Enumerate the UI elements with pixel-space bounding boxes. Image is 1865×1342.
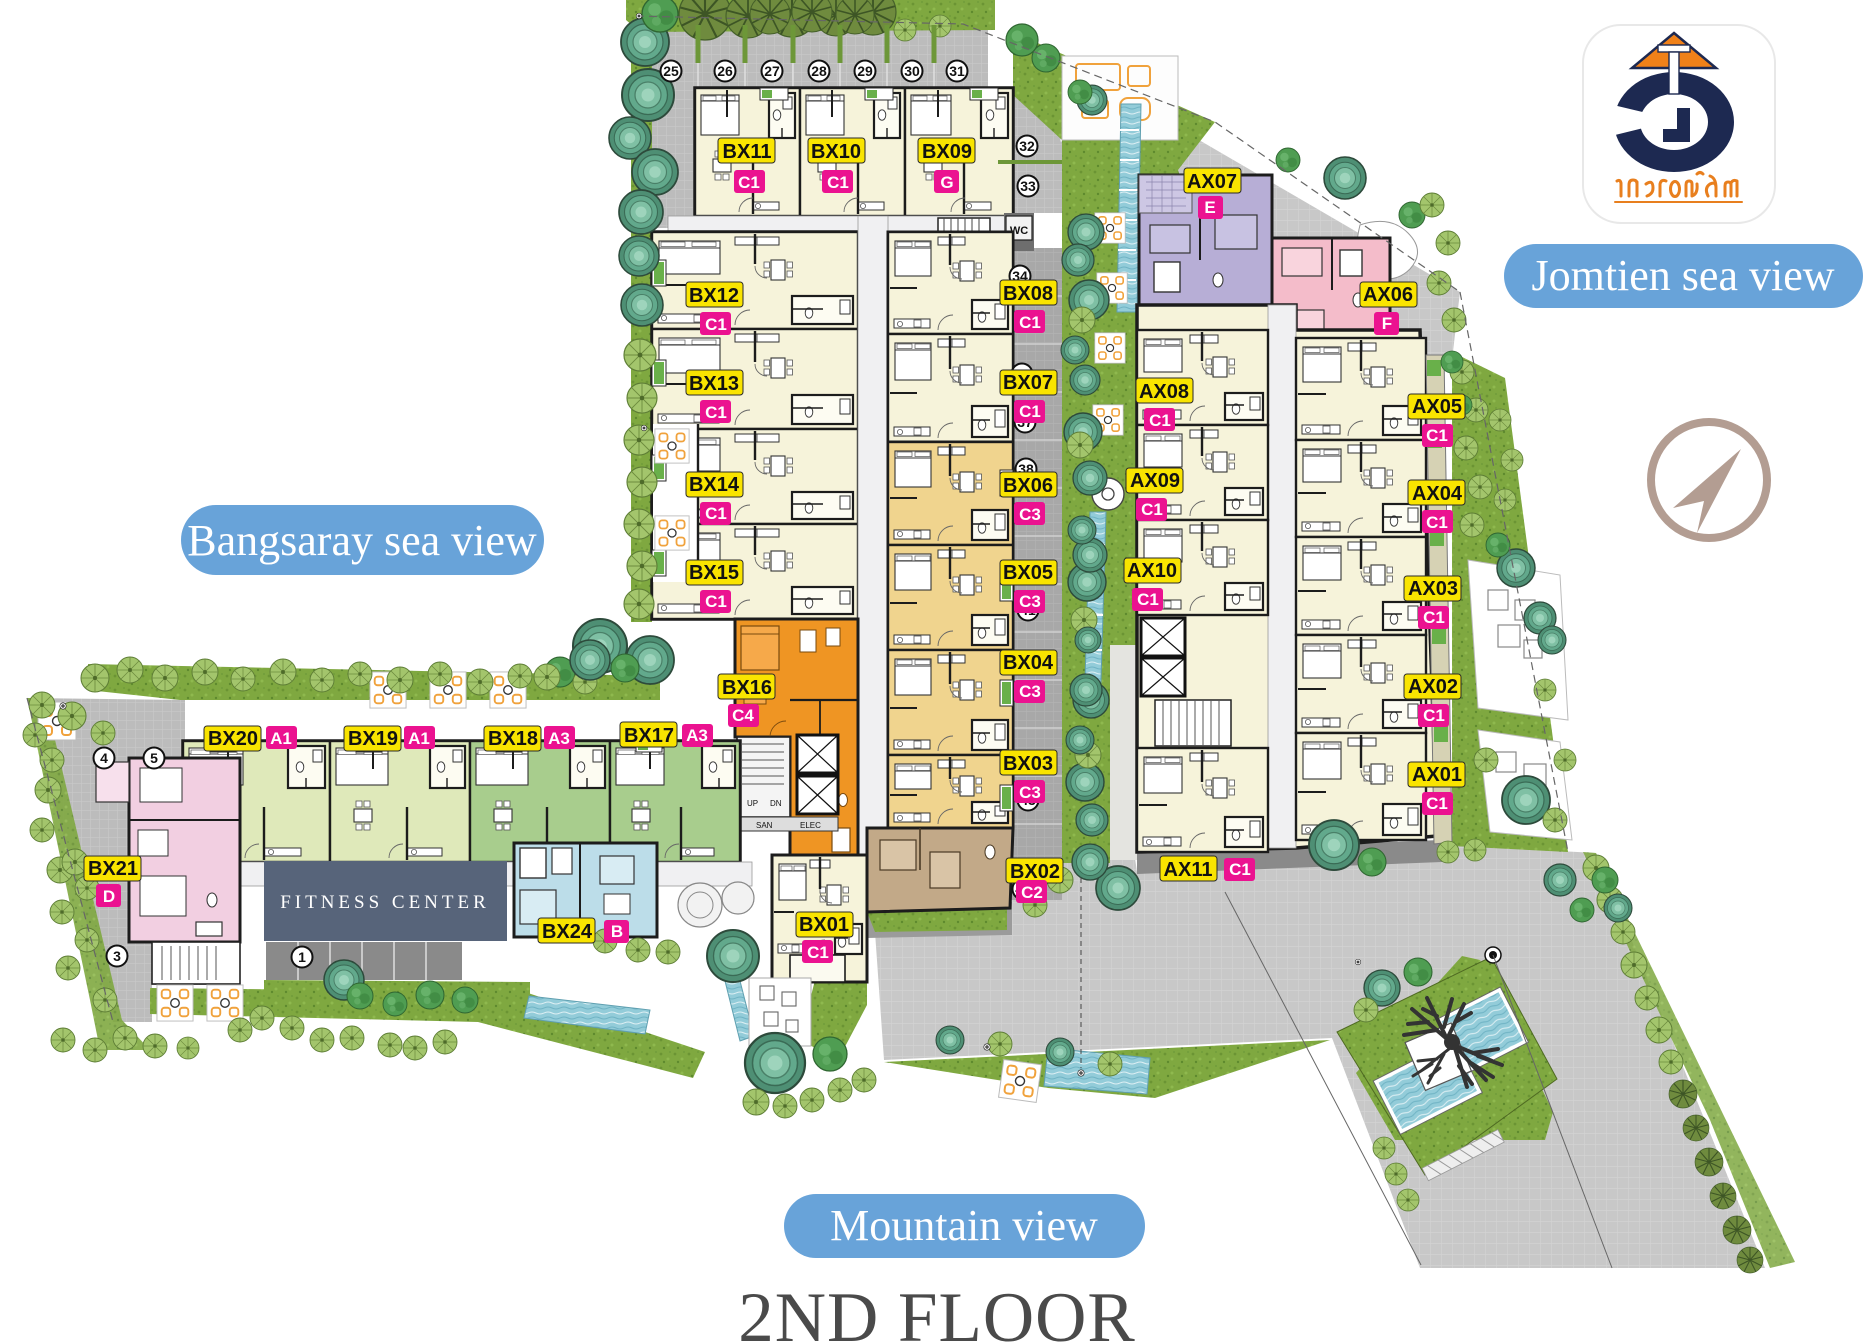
- svg-text:BX18: BX18: [488, 728, 538, 750]
- svg-text:A3: A3: [548, 729, 570, 748]
- svg-text:BX04: BX04: [1003, 652, 1054, 674]
- svg-text:BX19: BX19: [348, 728, 398, 750]
- svg-text:C3: C3: [1019, 505, 1041, 524]
- svg-text:BX20: BX20: [208, 728, 258, 750]
- svg-text:C1: C1: [705, 504, 727, 523]
- svg-text:C1: C1: [1141, 500, 1163, 519]
- svg-text:25: 25: [663, 63, 679, 79]
- svg-text:BX01: BX01: [799, 914, 849, 936]
- svg-text:33: 33: [1020, 178, 1036, 194]
- svg-text:AX02: AX02: [1408, 676, 1458, 698]
- svg-text:E: E: [1204, 198, 1215, 217]
- svg-text:C3: C3: [1019, 682, 1041, 701]
- svg-text:BX09: BX09: [922, 141, 972, 163]
- svg-text:5: 5: [150, 750, 158, 766]
- svg-text:BX06: BX06: [1003, 475, 1053, 497]
- svg-text:UP: UP: [747, 799, 758, 808]
- svg-text:AX10: AX10: [1127, 560, 1177, 582]
- svg-text:26: 26: [717, 63, 733, 79]
- svg-text:C4: C4: [732, 706, 754, 725]
- svg-text:BX12: BX12: [689, 285, 739, 307]
- svg-text:C1: C1: [1149, 411, 1171, 430]
- svg-text:BX10: BX10: [811, 141, 861, 163]
- svg-text:C1: C1: [1423, 608, 1445, 627]
- svg-text:27: 27: [764, 63, 780, 79]
- svg-text:BX11: BX11: [723, 141, 772, 163]
- svg-text:AX03: AX03: [1408, 578, 1458, 600]
- svg-text:F: F: [1382, 314, 1392, 333]
- svg-text:C1: C1: [705, 592, 727, 611]
- svg-text:BX02: BX02: [1010, 861, 1060, 883]
- svg-text:C1: C1: [807, 943, 829, 962]
- svg-text:AX04: AX04: [1412, 483, 1463, 505]
- svg-text:A3: A3: [686, 726, 708, 745]
- svg-text:DN: DN: [770, 799, 782, 808]
- svg-text:C1: C1: [705, 403, 727, 422]
- svg-text:FITNESS CENTER: FITNESS CENTER: [280, 892, 490, 913]
- svg-text:AX11: AX11: [1164, 859, 1213, 881]
- svg-text:C1: C1: [1229, 860, 1251, 879]
- svg-text:AX07: AX07: [1187, 171, 1237, 193]
- svg-text:1: 1: [298, 949, 306, 965]
- svg-text:C1: C1: [1423, 706, 1445, 725]
- svg-text:SAN: SAN: [756, 821, 773, 830]
- svg-text:28: 28: [811, 63, 827, 79]
- svg-text:BX08: BX08: [1003, 283, 1053, 305]
- svg-text:Bangsaray sea view: Bangsaray sea view: [187, 516, 537, 565]
- svg-text:BX13: BX13: [689, 373, 739, 395]
- svg-text:BX16: BX16: [722, 677, 772, 699]
- svg-text:AX09: AX09: [1130, 470, 1180, 492]
- svg-text:AX06: AX06: [1363, 284, 1413, 306]
- svg-text:BX15: BX15: [689, 562, 739, 584]
- svg-text:BX21: BX21: [88, 858, 138, 880]
- svg-text:C1: C1: [738, 173, 760, 192]
- svg-text:BX14: BX14: [689, 474, 740, 496]
- svg-text:C1: C1: [1426, 794, 1448, 813]
- svg-text:C3: C3: [1019, 592, 1041, 611]
- svg-text:A1: A1: [408, 729, 430, 748]
- svg-text:AX01: AX01: [1412, 764, 1462, 786]
- svg-text:C1: C1: [1019, 402, 1041, 421]
- svg-text:32: 32: [1019, 138, 1035, 154]
- svg-text:4: 4: [100, 750, 108, 766]
- svg-text:BX05: BX05: [1003, 562, 1053, 584]
- svg-text:C1: C1: [1426, 513, 1448, 532]
- svg-text:ELEC: ELEC: [800, 821, 821, 830]
- svg-text:C3: C3: [1019, 783, 1041, 802]
- svg-text:A1: A1: [270, 729, 292, 748]
- svg-text:C1: C1: [705, 315, 727, 334]
- svg-text:C1: C1: [1426, 426, 1448, 445]
- svg-text:BX03: BX03: [1003, 753, 1053, 775]
- svg-text:29: 29: [857, 63, 873, 79]
- svg-text:30: 30: [904, 63, 920, 79]
- svg-text:2ND FLOOR: 2ND FLOOR: [738, 1279, 1136, 1342]
- svg-text:C1: C1: [1137, 590, 1159, 609]
- svg-text:Mountain view: Mountain view: [830, 1201, 1098, 1250]
- svg-text:3: 3: [113, 948, 121, 964]
- svg-text:BX24: BX24: [542, 921, 593, 943]
- svg-text:D: D: [103, 887, 115, 906]
- svg-text:C1: C1: [827, 173, 849, 192]
- svg-text:G: G: [940, 173, 953, 192]
- svg-text:B: B: [611, 922, 623, 941]
- svg-text:31: 31: [949, 63, 965, 79]
- svg-text:AX05: AX05: [1412, 396, 1462, 418]
- svg-text:C1: C1: [1019, 313, 1041, 332]
- svg-text:BX07: BX07: [1003, 372, 1053, 394]
- svg-text:BX17: BX17: [624, 725, 674, 747]
- svg-text:AX08: AX08: [1139, 381, 1189, 403]
- svg-text:C2: C2: [1021, 883, 1043, 902]
- svg-text:Jomtien sea view: Jomtien sea view: [1531, 251, 1834, 300]
